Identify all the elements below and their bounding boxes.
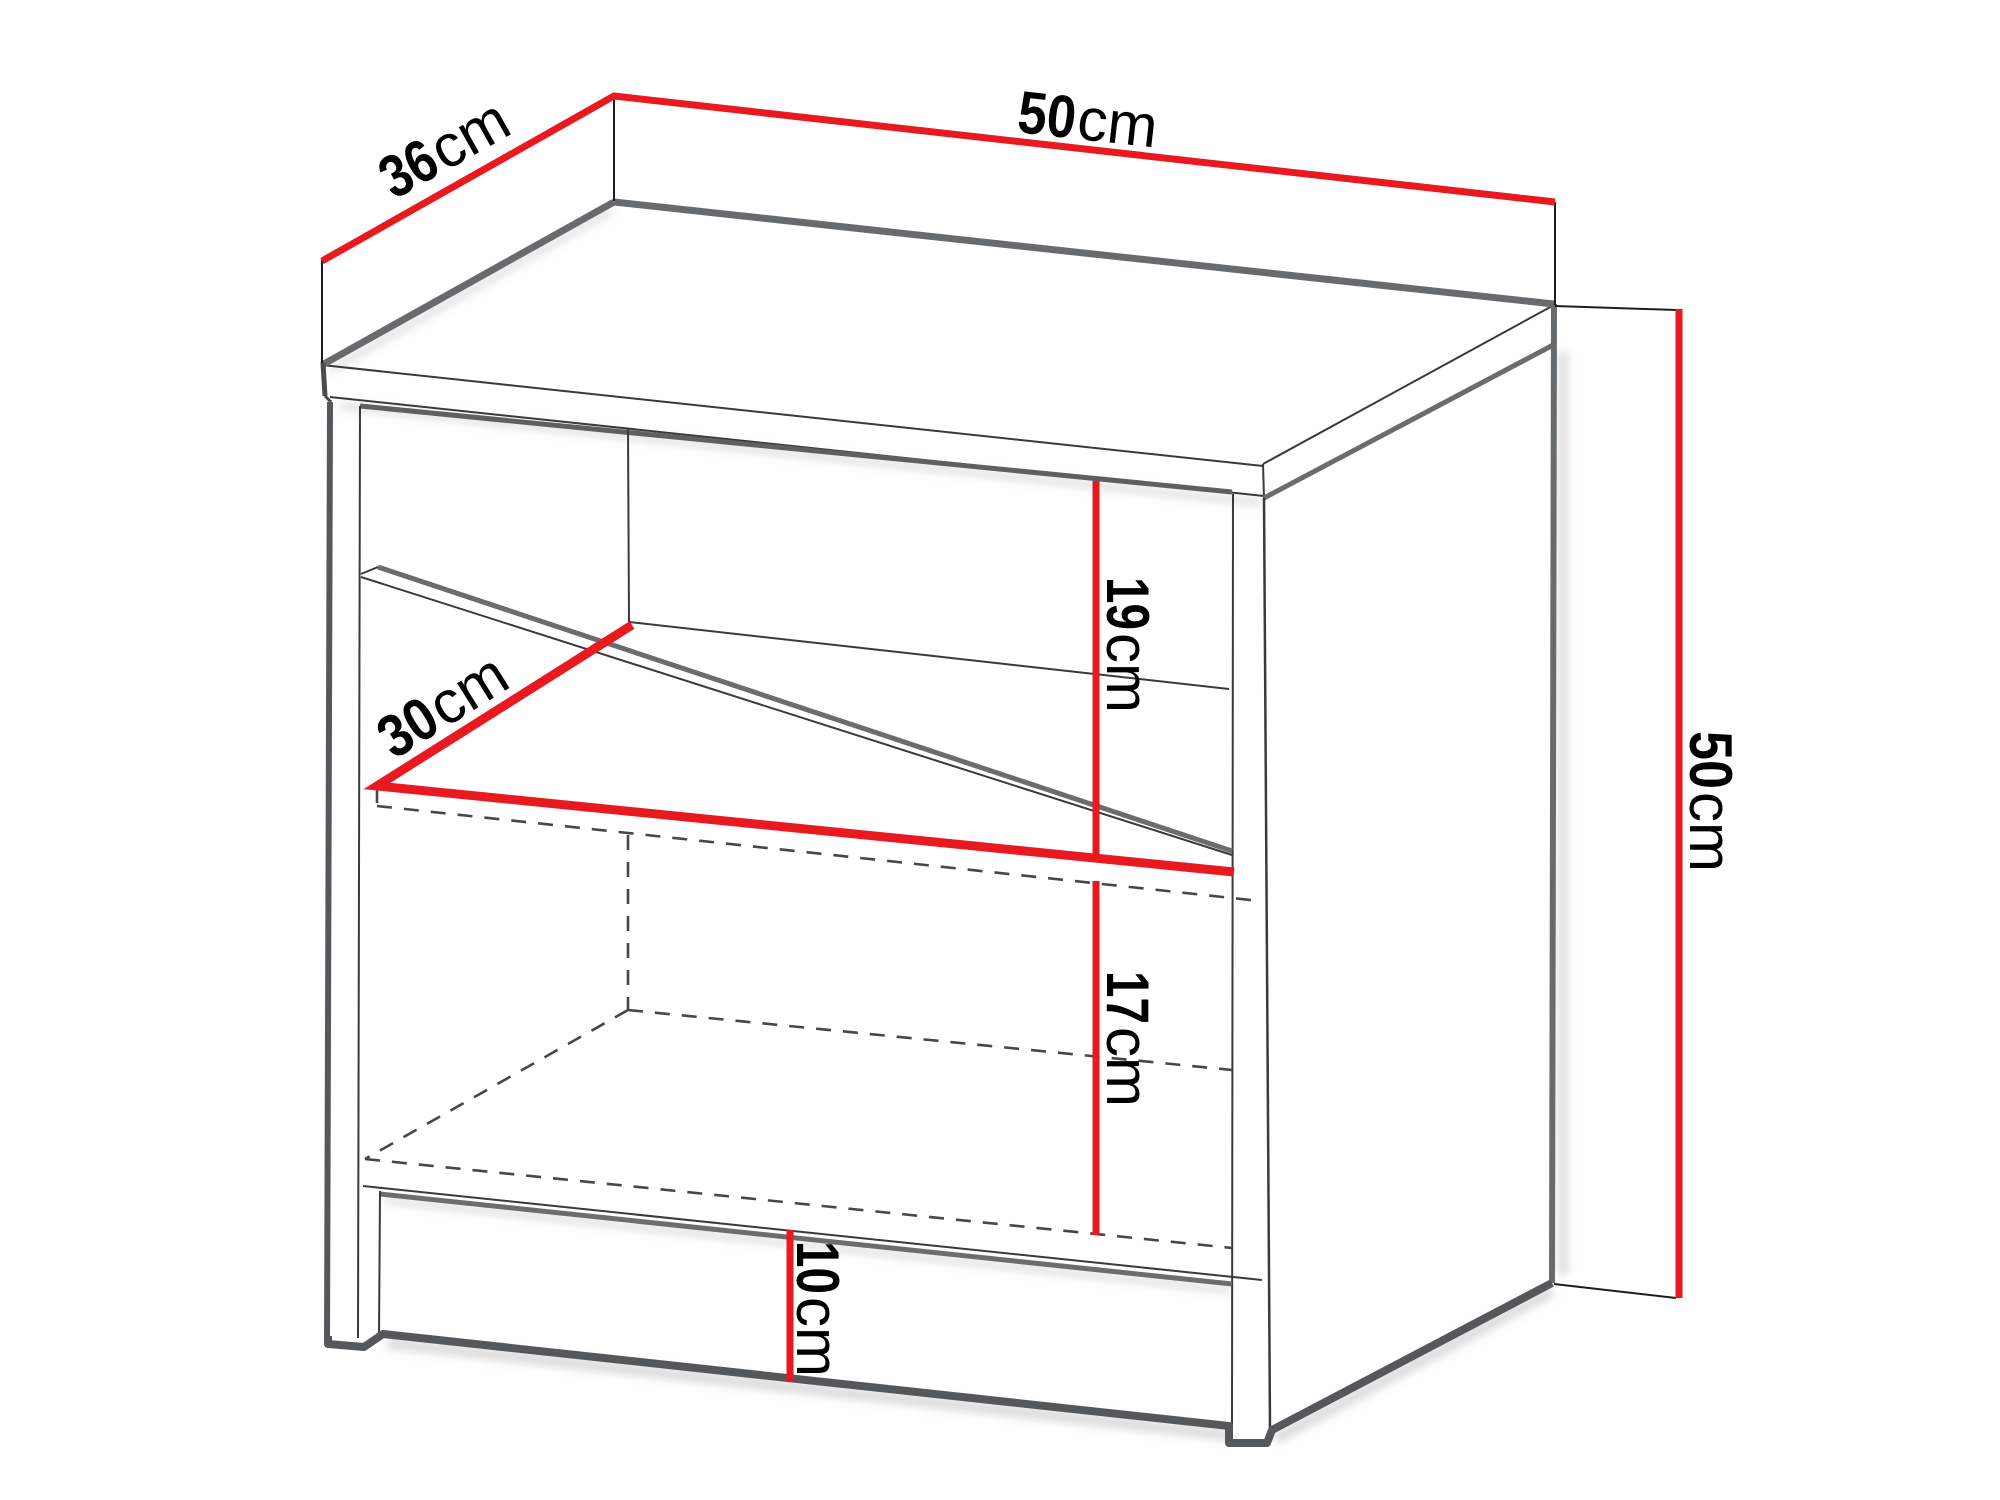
svg-text:50cm: 50cm: [1677, 731, 1744, 872]
svg-text:10cm: 10cm: [784, 1241, 851, 1377]
svg-text:17cm: 17cm: [1094, 971, 1161, 1107]
svg-text:19cm: 19cm: [1094, 577, 1161, 713]
